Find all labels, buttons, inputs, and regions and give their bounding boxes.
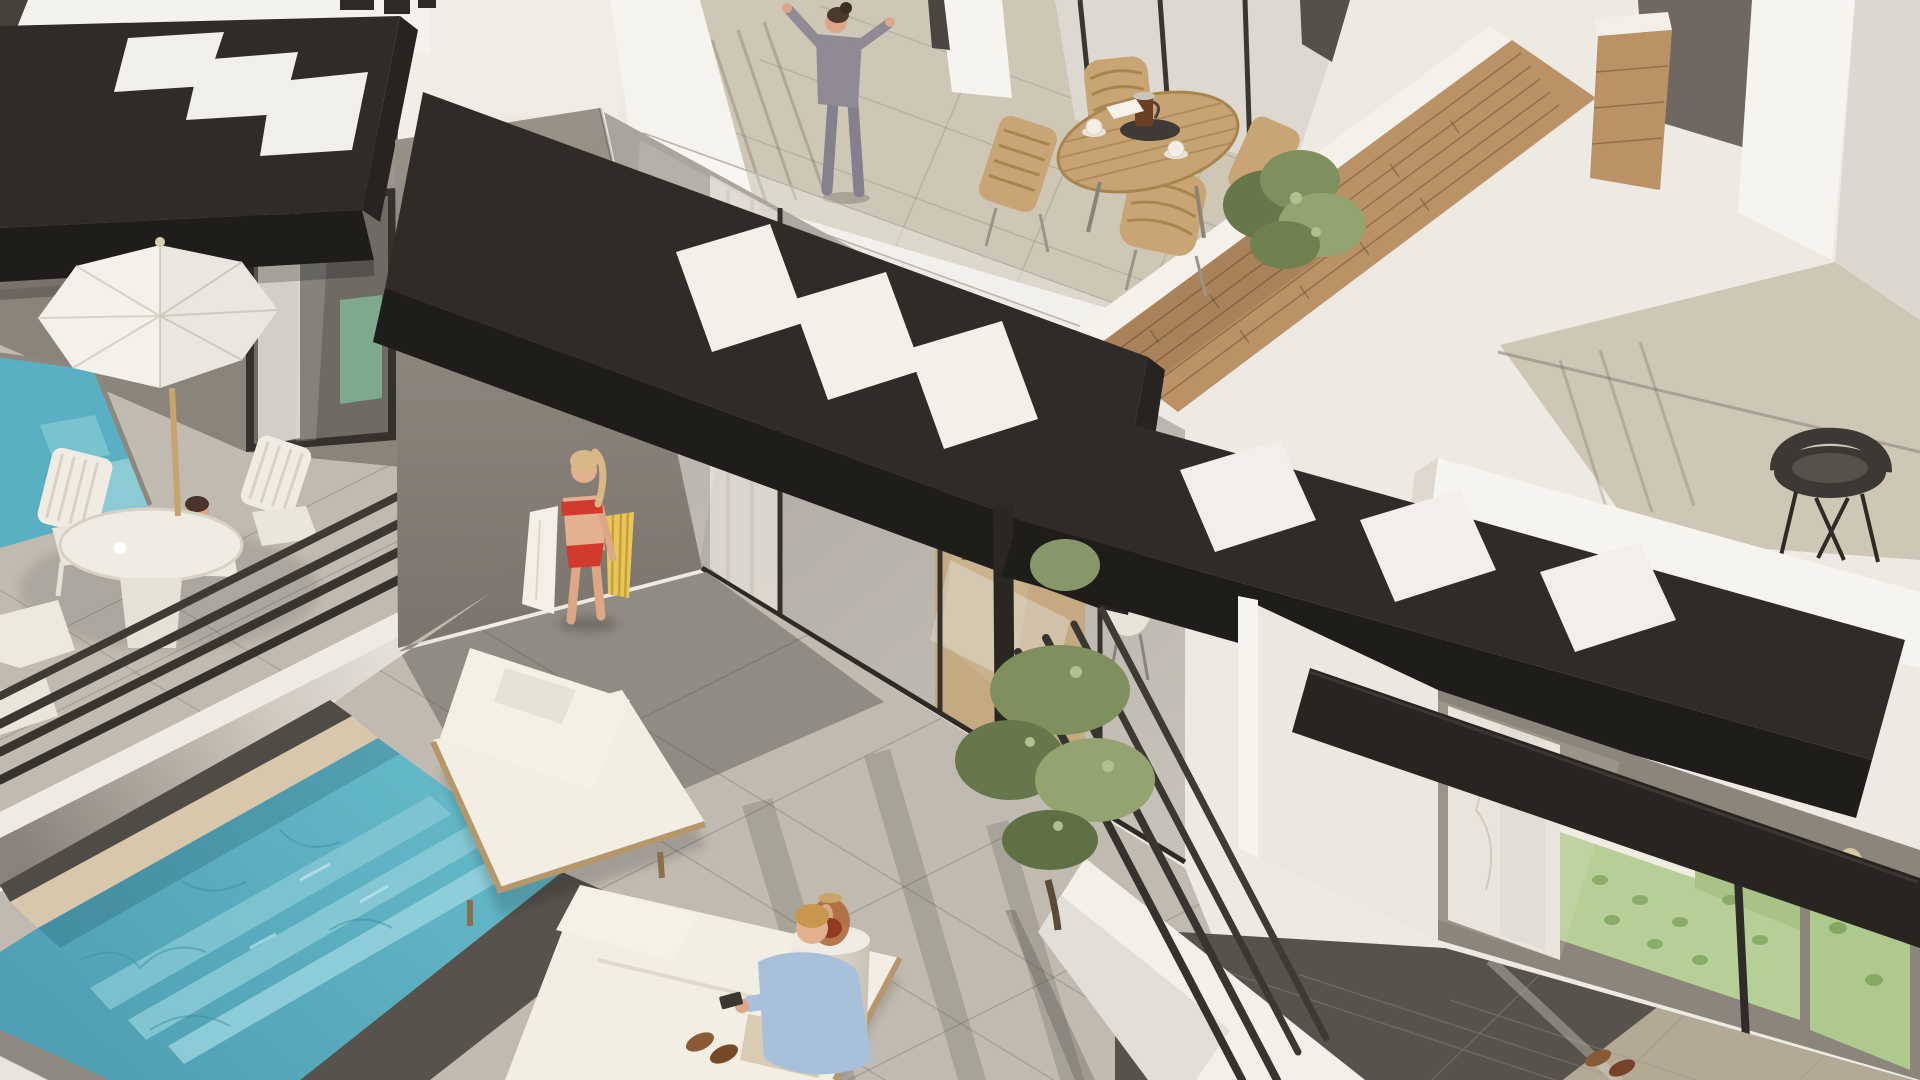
man-shirt <box>758 952 872 1074</box>
coffee-cup <box>1168 141 1184 157</box>
coffee-press-lid <box>1133 92 1155 100</box>
person-leg <box>827 102 833 190</box>
far-chair <box>340 0 374 10</box>
architectural-rendering <box>0 0 1920 1080</box>
man-hair <box>185 496 209 512</box>
jar-lid <box>818 893 842 903</box>
coffee-cup <box>1086 119 1102 135</box>
wicker-cushion <box>1792 453 1868 483</box>
parasol-finial <box>155 237 165 247</box>
person-leg <box>853 104 859 192</box>
pergola-left-opening <box>260 72 368 156</box>
bedroom-wall-edge <box>1238 596 1258 858</box>
person-hand <box>782 3 792 13</box>
person-hand <box>885 17 895 27</box>
bush-highlight <box>1311 227 1321 237</box>
olive-foliage <box>1035 738 1155 822</box>
bush-highlight <box>1290 192 1302 204</box>
table-cup <box>114 542 126 554</box>
roof-white-facet <box>430 0 640 120</box>
far-chair <box>384 0 410 14</box>
scene-canvas <box>0 0 1920 1080</box>
person-hair-bun <box>840 2 852 14</box>
armchair-pattern <box>1829 922 1847 934</box>
armchair-pattern <box>1865 974 1883 986</box>
far-table <box>418 0 436 8</box>
lounger-leg <box>660 852 662 878</box>
olive-foliage <box>1002 810 1098 870</box>
bikini-bottom <box>566 543 604 568</box>
stone-block <box>1590 30 1672 190</box>
man-hair <box>795 904 829 928</box>
interior-green-cabinet <box>340 295 382 404</box>
bush-foliage <box>1250 221 1320 269</box>
olive-foliage <box>1030 539 1100 591</box>
